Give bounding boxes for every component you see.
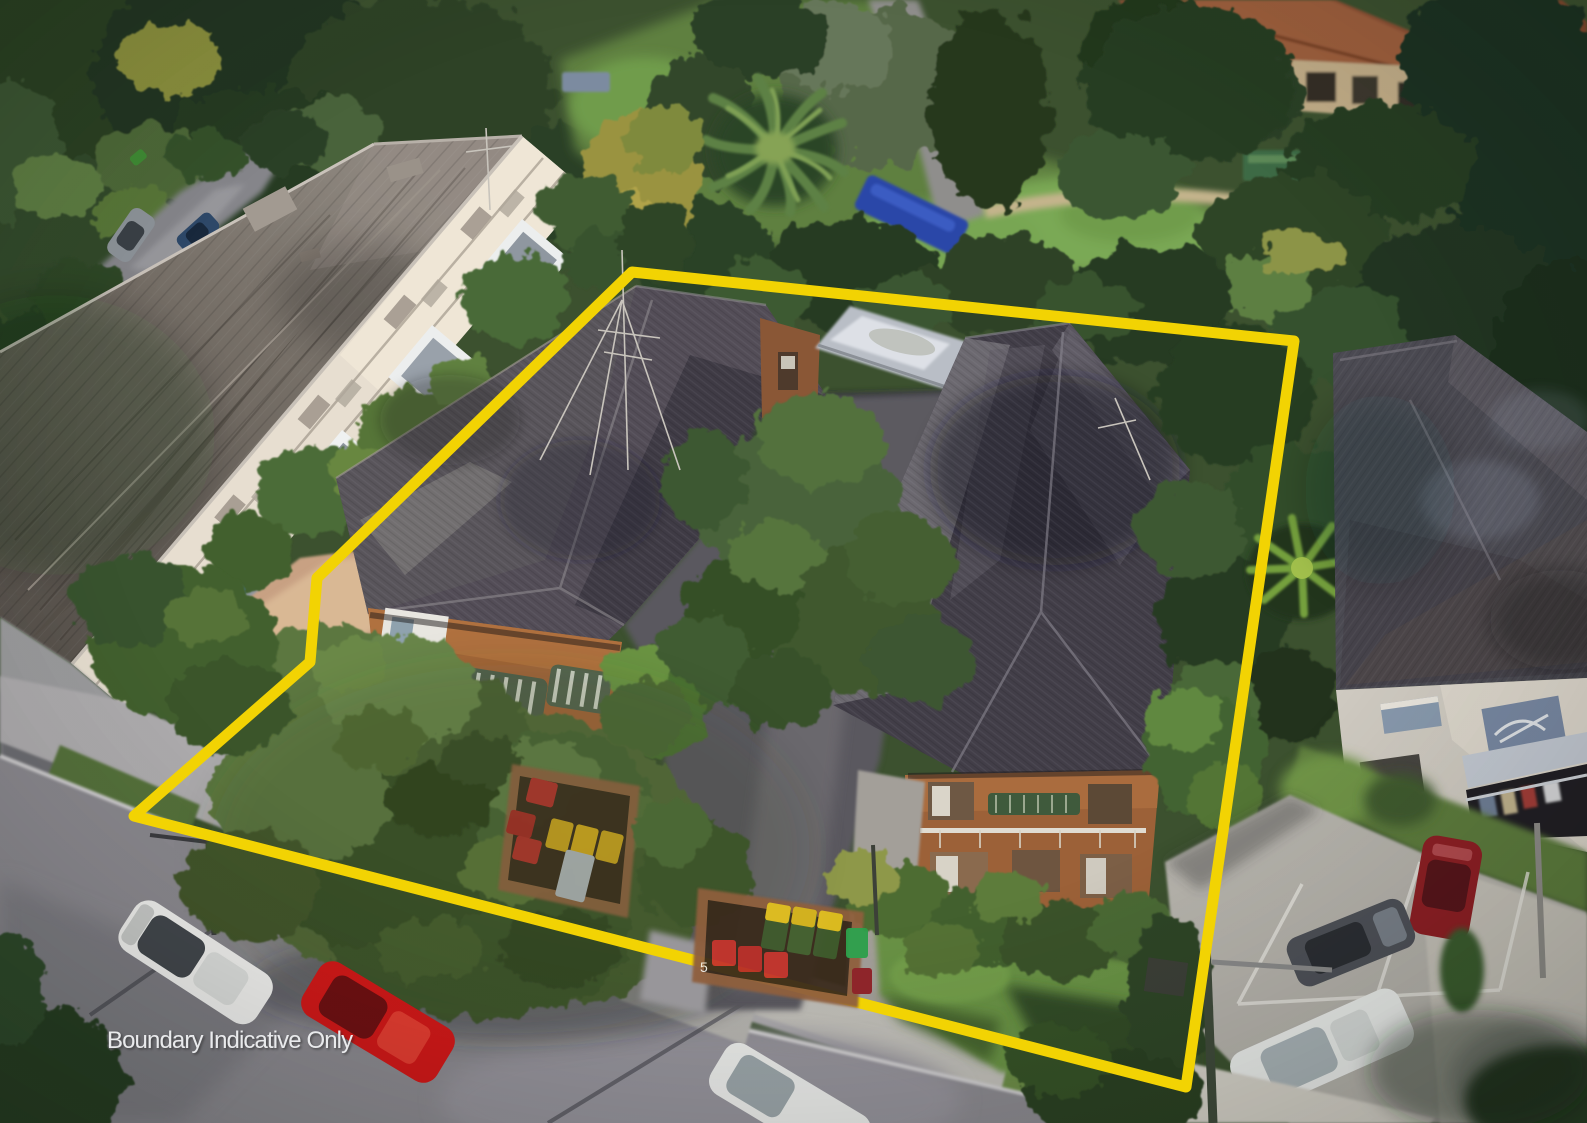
svg-text:Boundary Indicative Only: Boundary Indicative Only <box>107 1027 353 1054</box>
svg-text:5: 5 <box>700 959 708 975</box>
